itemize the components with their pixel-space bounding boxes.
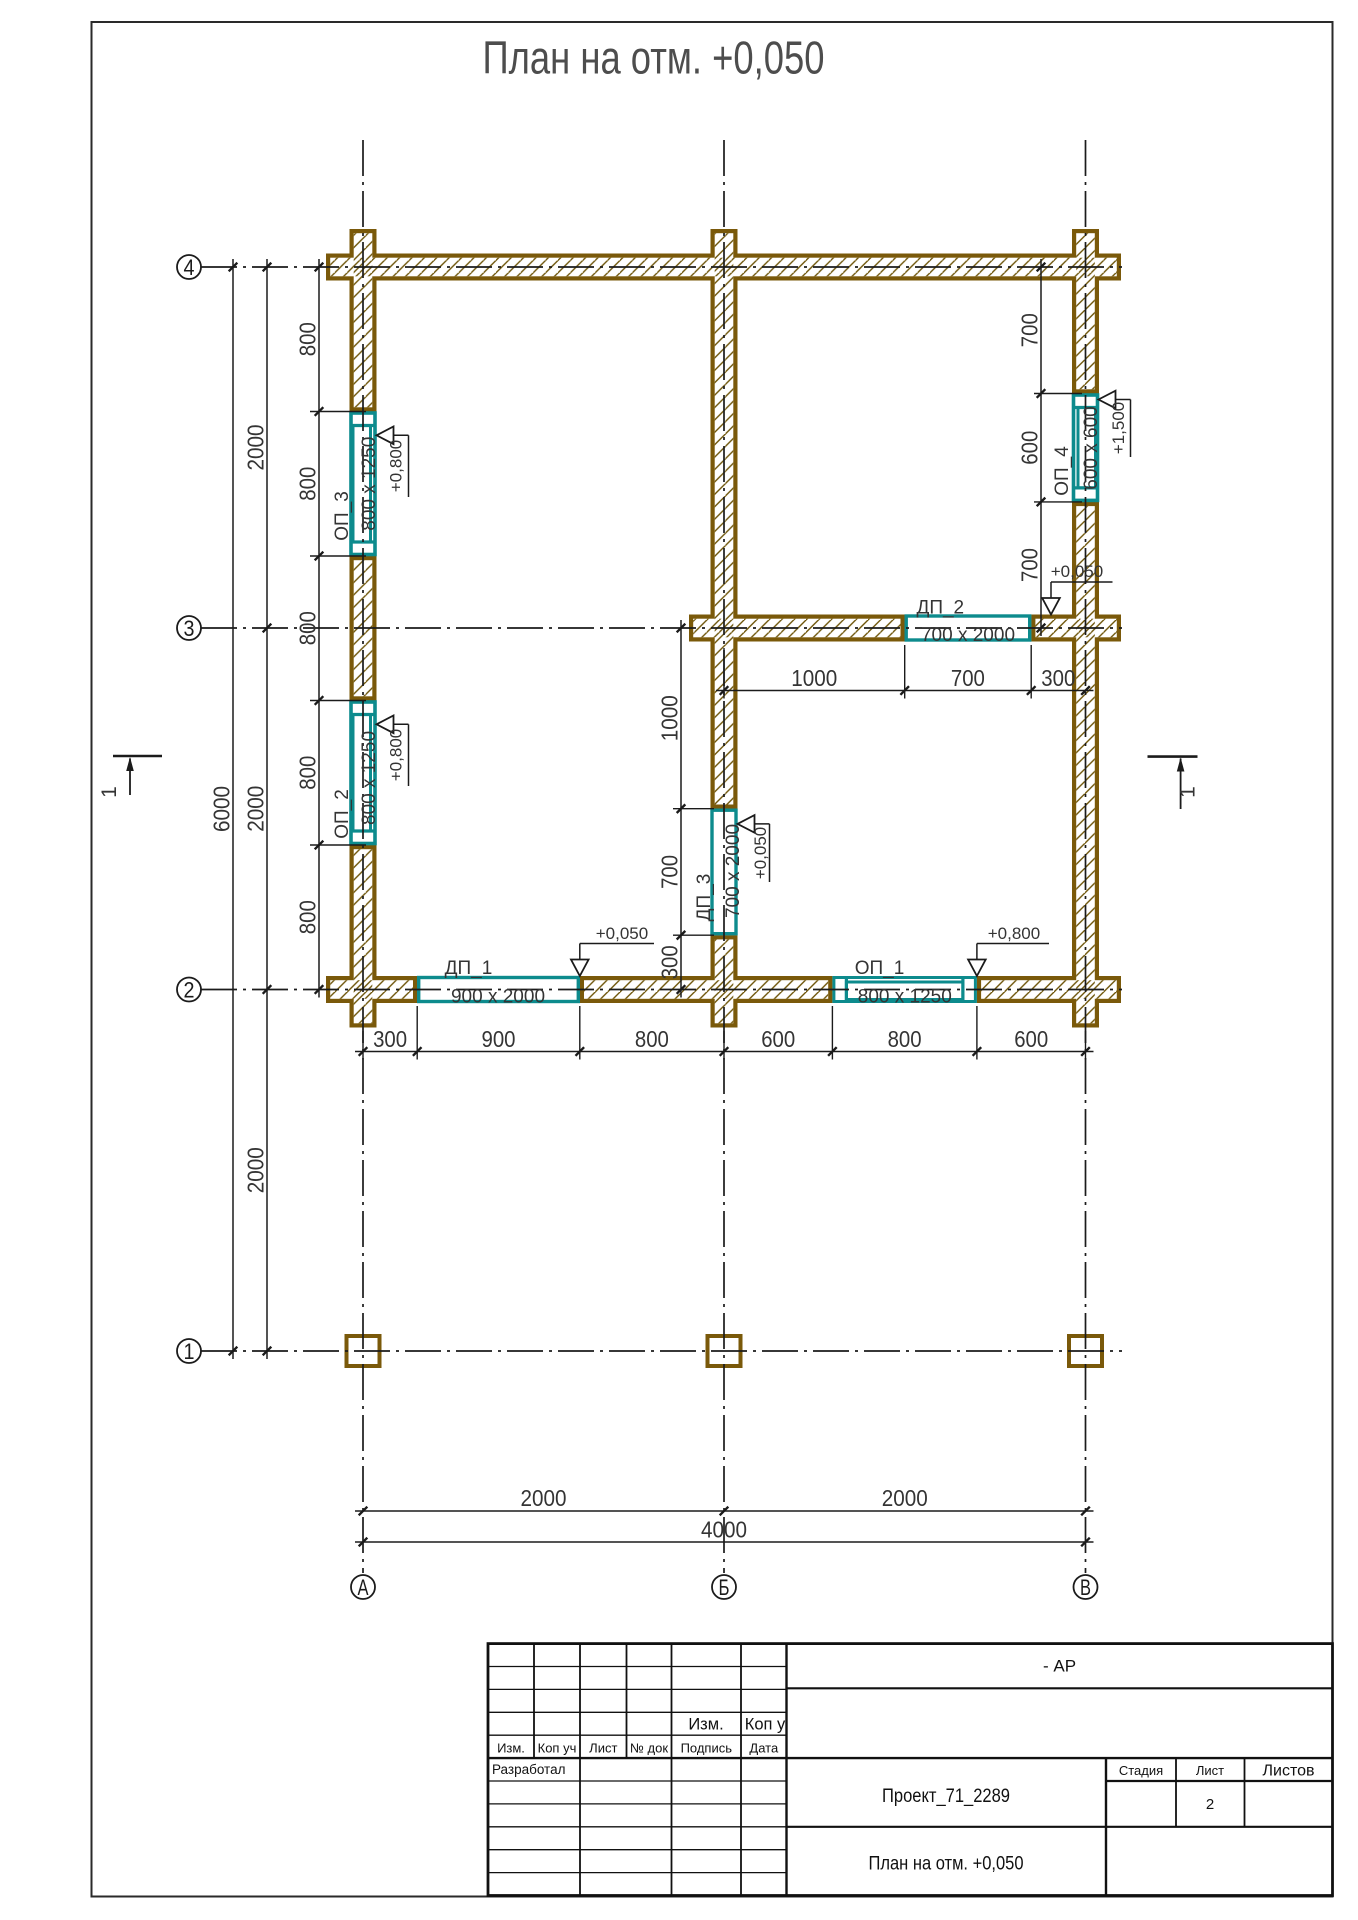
svg-text:В: В [1080, 1575, 1091, 1600]
svg-text:ОП_2: ОП_2 [332, 789, 353, 839]
svg-text:600 x 600: 600 x 600 [1081, 406, 1102, 489]
svg-text:800: 800 [295, 322, 321, 356]
svg-text:700: 700 [1017, 548, 1043, 582]
svg-text:800: 800 [295, 900, 321, 934]
svg-text:800 x 1250: 800 x 1250 [359, 437, 380, 531]
svg-text:Коп у: Коп у [745, 1716, 786, 1734]
svg-text:ДП_3: ДП_3 [694, 874, 715, 922]
svg-text:800 x 1250: 800 x 1250 [858, 987, 952, 1008]
svg-text:800: 800 [635, 1026, 669, 1052]
svg-text:2000: 2000 [243, 1147, 269, 1193]
svg-text:2000: 2000 [243, 786, 269, 832]
svg-text:800: 800 [295, 756, 321, 790]
svg-text:1: 1 [184, 1339, 195, 1364]
svg-text:700 x 2000: 700 x 2000 [921, 625, 1015, 646]
svg-text:- АР: - АР [1043, 1657, 1076, 1676]
svg-text:ОП_3: ОП_3 [332, 491, 353, 541]
svg-text:1000: 1000 [791, 665, 837, 691]
svg-text:700 x 2000: 700 x 2000 [723, 824, 744, 918]
svg-text:+1,500: +1,500 [1109, 402, 1128, 454]
svg-text:800 x 1250: 800 x 1250 [359, 731, 380, 825]
svg-text:2: 2 [184, 978, 195, 1003]
svg-text:2000: 2000 [521, 1485, 567, 1511]
svg-text:План на отм. +0,050: План на отм. +0,050 [869, 1854, 1024, 1875]
svg-text:800: 800 [888, 1026, 922, 1052]
svg-text:+0,050: +0,050 [596, 924, 648, 943]
svg-text:Лист: Лист [1196, 1763, 1224, 1778]
svg-text:4000: 4000 [701, 1517, 747, 1543]
svg-text:2000: 2000 [243, 425, 269, 471]
svg-text:800: 800 [295, 467, 321, 501]
svg-text:300: 300 [1041, 665, 1075, 691]
svg-text:Стадия: Стадия [1119, 1763, 1163, 1778]
svg-text:+0,050: +0,050 [751, 827, 770, 879]
svg-text:1000: 1000 [657, 695, 683, 741]
svg-text:+0,800: +0,800 [387, 440, 406, 492]
svg-text:2000: 2000 [882, 1485, 928, 1511]
svg-text:4: 4 [184, 255, 195, 280]
svg-text:Изм.: Изм. [497, 1741, 525, 1756]
svg-text:300: 300 [373, 1026, 407, 1052]
svg-text:ДП_1: ДП_1 [445, 958, 493, 979]
svg-text:3: 3 [184, 616, 195, 641]
svg-text:Дата: Дата [749, 1741, 779, 1756]
svg-text:№ док: № док [630, 1741, 668, 1756]
svg-text:Подпись: Подпись [681, 1741, 733, 1756]
svg-text:1: 1 [98, 786, 121, 798]
svg-text:1: 1 [1177, 786, 1200, 798]
svg-text:Разработал: Разработал [492, 1762, 565, 1777]
svg-text:Изм.: Изм. [688, 1716, 723, 1734]
svg-text:6000: 6000 [209, 786, 235, 832]
svg-text:300: 300 [657, 945, 683, 979]
svg-text:700: 700 [657, 855, 683, 889]
svg-text:+0,050: +0,050 [1051, 562, 1103, 581]
svg-text:600: 600 [761, 1026, 795, 1052]
svg-text:+0,800: +0,800 [387, 729, 406, 781]
svg-text:План на отм. +0,050: План на отм. +0,050 [483, 32, 825, 84]
svg-text:Проект_71_2289: Проект_71_2289 [882, 1786, 1010, 1807]
svg-text:+0,800: +0,800 [988, 924, 1040, 943]
svg-text:800: 800 [295, 611, 321, 645]
svg-text:Коп уч: Коп уч [538, 1741, 577, 1756]
svg-text:900 x 2000: 900 x 2000 [451, 987, 545, 1008]
svg-text:А: А [358, 1575, 369, 1600]
svg-text:Листов: Листов [1263, 1762, 1315, 1779]
svg-text:ОП_1: ОП_1 [855, 958, 905, 979]
svg-text:ОП_4: ОП_4 [1052, 446, 1073, 496]
svg-text:900: 900 [482, 1026, 516, 1052]
svg-text:ДП_2: ДП_2 [916, 598, 964, 619]
svg-text:Б: Б [719, 1575, 730, 1600]
svg-text:700: 700 [951, 665, 985, 691]
svg-text:600: 600 [1014, 1026, 1048, 1052]
svg-text:700: 700 [1017, 313, 1043, 347]
svg-text:2: 2 [1206, 1796, 1214, 1813]
svg-text:600: 600 [1017, 431, 1043, 465]
svg-text:Лист: Лист [589, 1741, 617, 1756]
